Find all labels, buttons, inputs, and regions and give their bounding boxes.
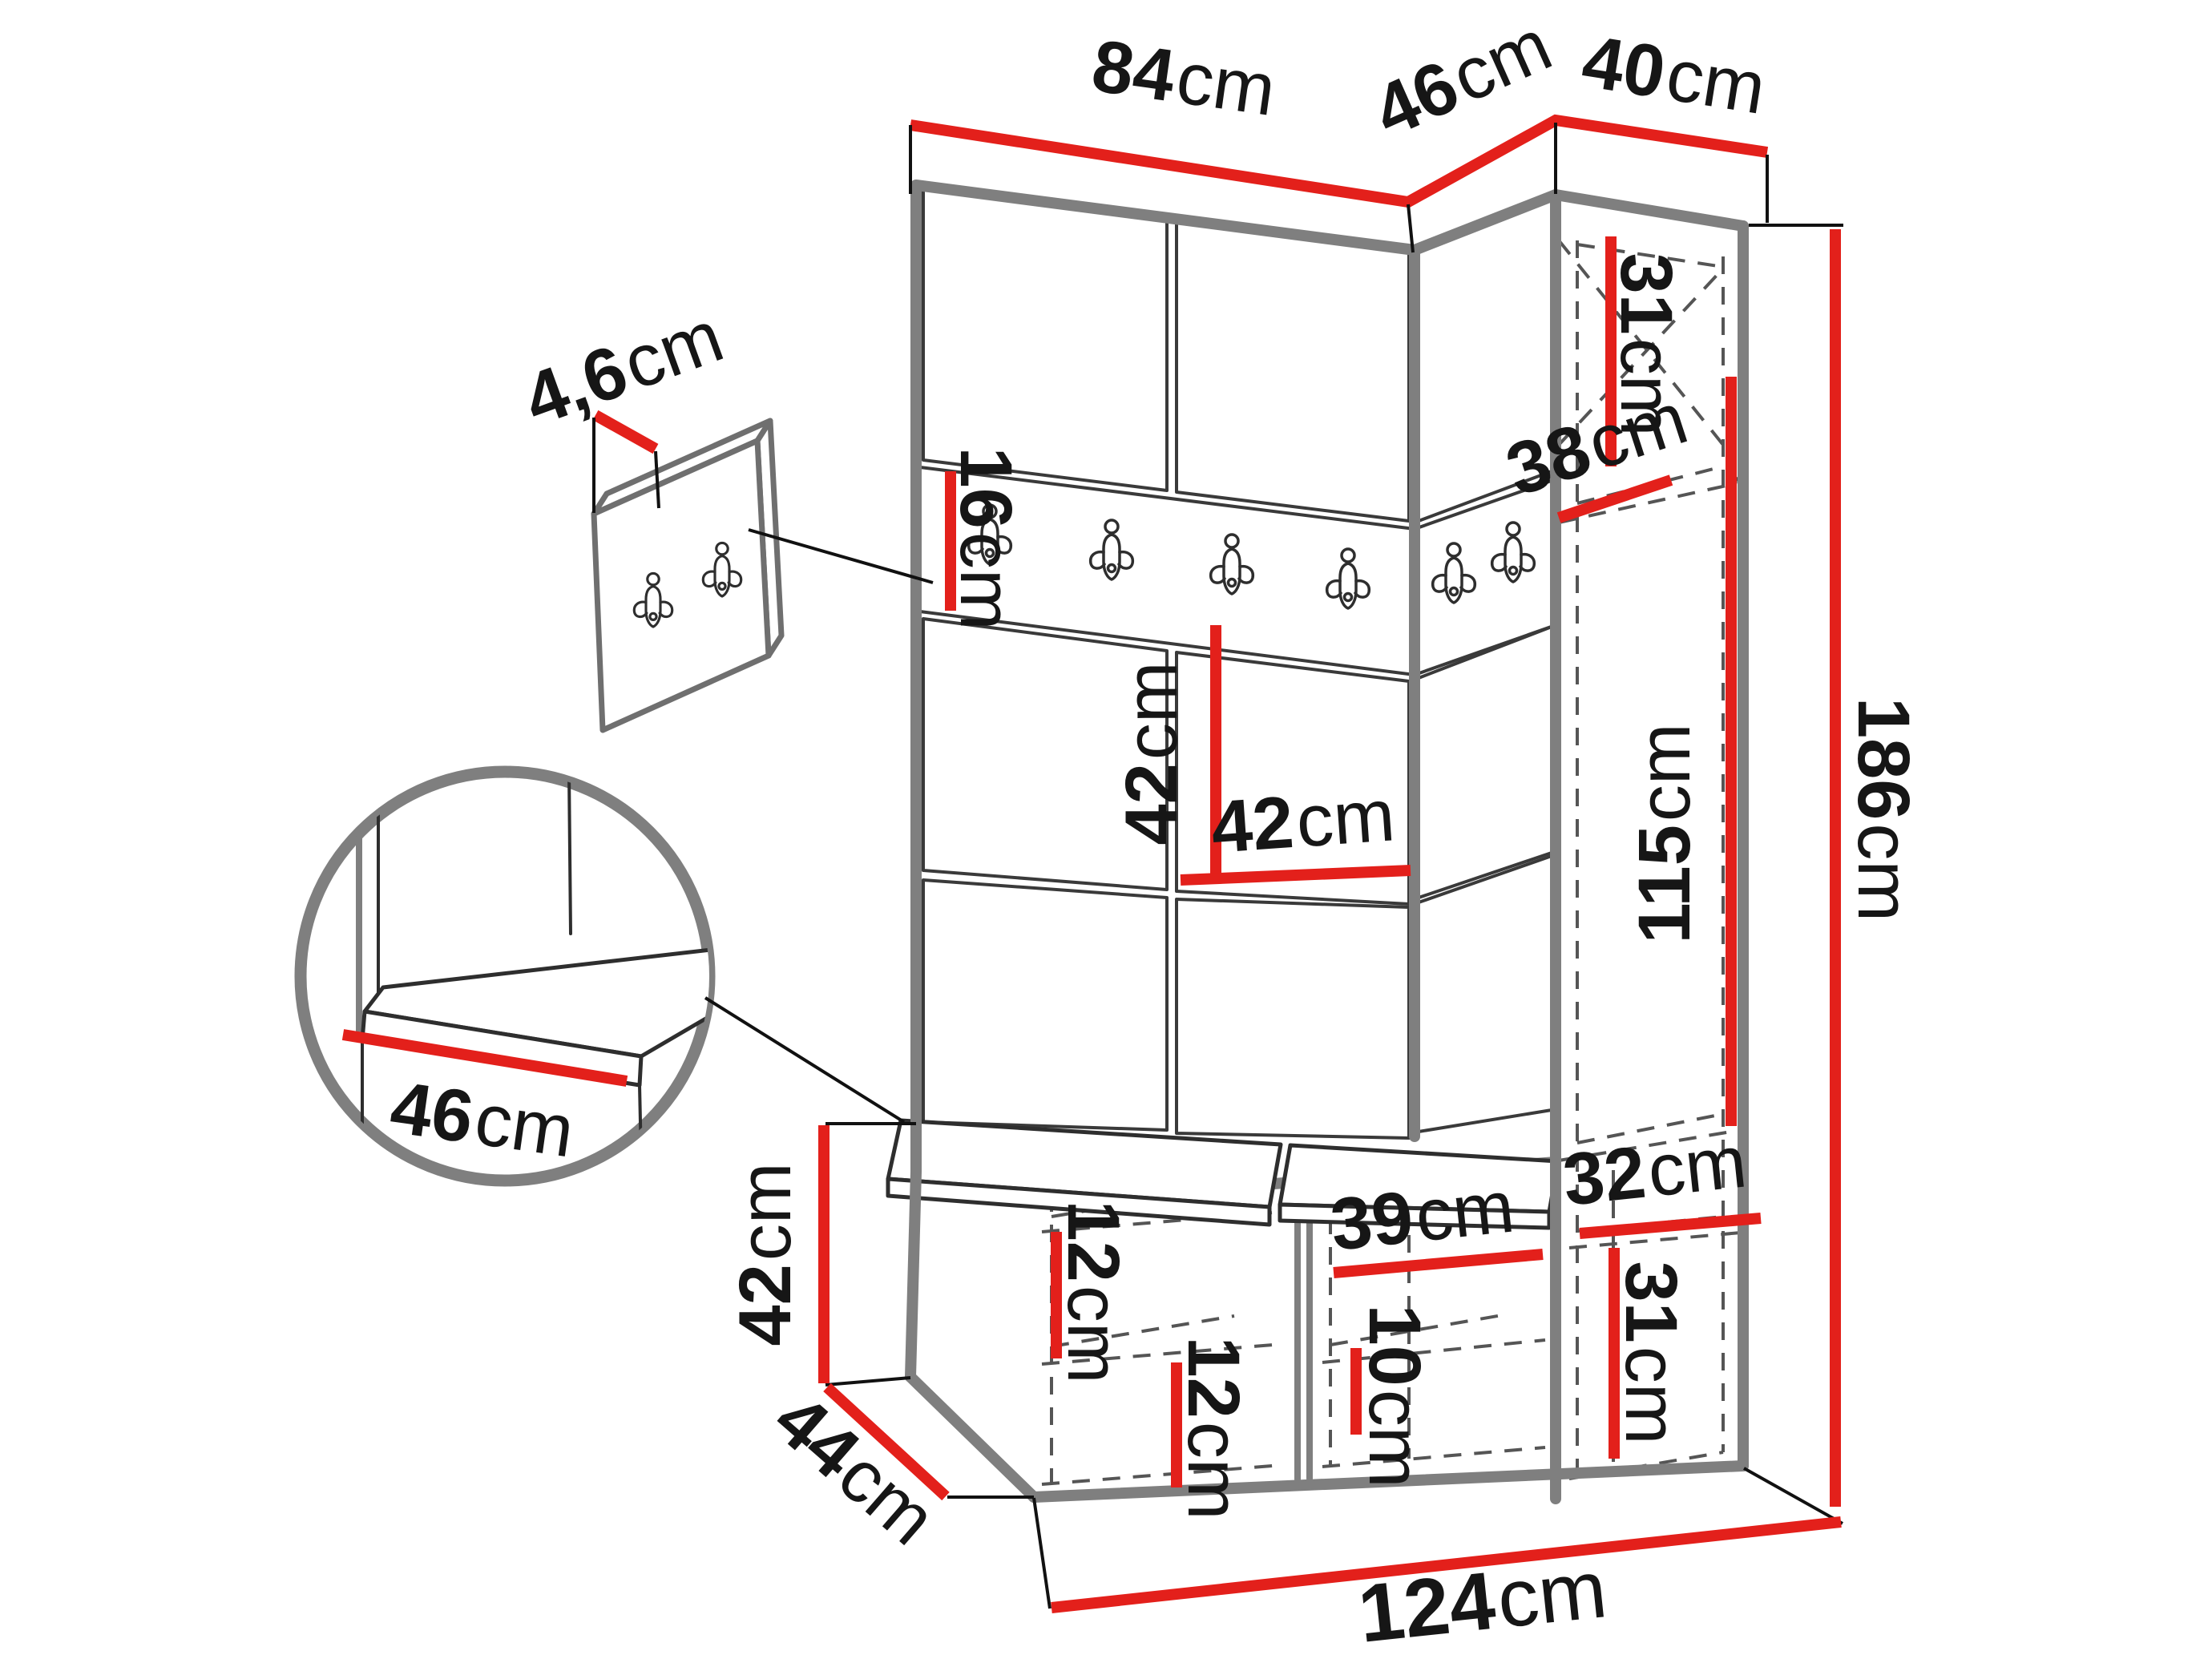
dim-label-total-height: 186cm	[1843, 697, 1924, 922]
dim-label-top-width-right: 40cm	[1577, 20, 1771, 130]
dim-label-hook-rail-height: 16cm	[945, 447, 1027, 631]
furniture-dimension-diagram: 4,6cm 46cm 84cm 46cm 40cm 16cm	[0, 0, 2212, 1659]
upholstered-panels	[923, 186, 1552, 1138]
dim-label-wall-panel-width: 42cm	[1209, 774, 1398, 869]
dim-label-bench-shelf-gap-left: 12cm	[1052, 1201, 1134, 1384]
dim-label-bench-shelf-gap-middle: 12cm	[1173, 1337, 1254, 1520]
dim-label-cabinet-bottom-section-height: 31cm	[1610, 1261, 1692, 1445]
diagram-canvas: 4,6cm 46cm 84cm 46cm 40cm 16cm	[0, 0, 2212, 1659]
dim-label-bench-shelf-gap-right: 10cm	[1354, 1305, 1435, 1488]
dim-line-top-widths	[910, 120, 1767, 202]
dim-label-wall-panel-height: 42cm	[1111, 662, 1193, 846]
dim-label-bench-height: 42cm	[725, 1163, 806, 1346]
dim-label-total-width: 124cm	[1354, 1543, 1611, 1659]
dim-label-hook-panel-thickness: 4,6cm	[514, 295, 733, 442]
hook-panel-detail: 4,6cm	[514, 295, 933, 730]
bench-side-face	[910, 1172, 1034, 1497]
circle-pointer-line	[705, 998, 904, 1122]
dim-line-4-6cm	[595, 415, 656, 449]
dim-label-cabinet-hanging-height: 115cm	[1624, 723, 1705, 943]
dim-label-top-width-left: 84cm	[1088, 25, 1281, 131]
cushion-detail-circle: 46cm	[301, 753, 904, 1181]
